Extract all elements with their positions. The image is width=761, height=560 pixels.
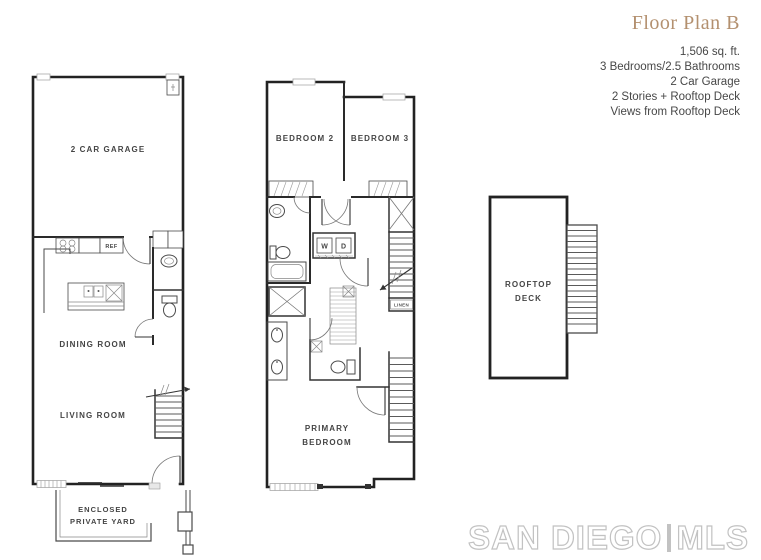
- primary-toilet: [331, 360, 355, 374]
- hall-bath-toilet: [270, 246, 290, 259]
- primary-vanity: [267, 322, 287, 380]
- powder-toilet: [162, 296, 177, 317]
- refrigerator-label: REF: [105, 244, 117, 250]
- stair-closet: [389, 197, 414, 232]
- first-floor-outer-walls: [33, 77, 183, 484]
- storage-box: [153, 231, 168, 248]
- first-floor-plan: REF: [33, 74, 193, 554]
- kitchen-wall-jog: [44, 249, 70, 313]
- dining-room-label: DINING ROOM: [59, 340, 126, 349]
- garage-entry-door-arc: [123, 237, 150, 264]
- logo-suffix-text: MLS: [676, 519, 749, 557]
- linen-closet: LINEN: [389, 298, 414, 311]
- hall-bath-door-arc: [294, 197, 310, 213]
- bedroom3-window: [383, 94, 405, 100]
- bedroom2-closet: [269, 181, 313, 197]
- rooftop-stairs: [567, 225, 597, 333]
- yard-door-arc: [152, 456, 180, 484]
- yard-end-post: [183, 545, 193, 554]
- rooftop-deck-label-line1: ROOFTOP: [505, 280, 552, 289]
- storage-box: [168, 231, 183, 248]
- door-threshold: [149, 483, 160, 489]
- washer-dryer-closet: W D: [313, 233, 355, 258]
- bedroom2-door-arc: [322, 199, 348, 225]
- bedroom3-label: BEDROOM 3: [351, 134, 409, 143]
- linen-label: LINEN: [394, 303, 409, 308]
- kitchen-island: [68, 283, 124, 310]
- garage-door-notch-left: [37, 74, 50, 80]
- sandiego-mls-logo: SAN DIEGO MLS: [468, 519, 749, 557]
- walk-in-closet: [311, 286, 356, 352]
- second-floor-plan: W D: [267, 79, 414, 491]
- powder-sink: [161, 255, 177, 267]
- refrigerator: REF: [100, 238, 123, 253]
- stairs-upper: [380, 232, 414, 298]
- stove: [56, 238, 79, 253]
- floorplan-svg: REF: [0, 0, 761, 560]
- washer-label: W: [321, 244, 328, 251]
- shower: [269, 287, 305, 316]
- dryer-label: D: [341, 244, 346, 251]
- stairs-up-arrow: [380, 285, 387, 291]
- powder-room: [135, 248, 183, 344]
- yard-label-line1: ENCLOSED: [78, 505, 128, 514]
- floor-plan-page: Floor Plan B 1,506 sq. ft. 3 Bedrooms/2.…: [0, 0, 761, 560]
- living-room-label: LIVING ROOM: [60, 411, 126, 420]
- primary-bedroom-label-line1: PRIMARY: [305, 424, 349, 433]
- wd-door-arc: [340, 258, 368, 286]
- water-heater: [167, 80, 179, 95]
- yard-gate-post: [178, 512, 192, 531]
- rooftop-deck-plan: ROOFTOP DECK: [490, 197, 597, 378]
- primary-bedroom-label-line2: BEDROOM: [302, 438, 351, 447]
- bedroom2-label: BEDROOM 2: [276, 134, 334, 143]
- bedroom2-window: [293, 79, 315, 85]
- kitchen-counter: [79, 238, 100, 253]
- yard-label-line2: PRIVATE YARD: [70, 517, 136, 526]
- primary-bathroom: [267, 318, 360, 380]
- rooftop-deck-label-line2: DECK: [515, 294, 542, 303]
- bedroom3-closet: [369, 181, 407, 197]
- bedroom3-door-arc: [324, 199, 350, 225]
- stairs-lower: [389, 352, 414, 442]
- powder-door-arc: [135, 319, 153, 337]
- hall-bathroom: [267, 197, 310, 283]
- stairs-arrow: [184, 387, 190, 393]
- logo-brand-text: SAN DIEGO: [468, 519, 662, 557]
- hall-bath-sink: [270, 205, 285, 218]
- logo-divider-bar: [667, 524, 671, 552]
- garage-label: 2 CAR GARAGE: [71, 145, 146, 154]
- primary-bath-door-arc: [310, 318, 332, 340]
- bathtub: [268, 262, 306, 281]
- primary-door-arc: [357, 387, 385, 415]
- garage-door-notch-right: [166, 74, 179, 80]
